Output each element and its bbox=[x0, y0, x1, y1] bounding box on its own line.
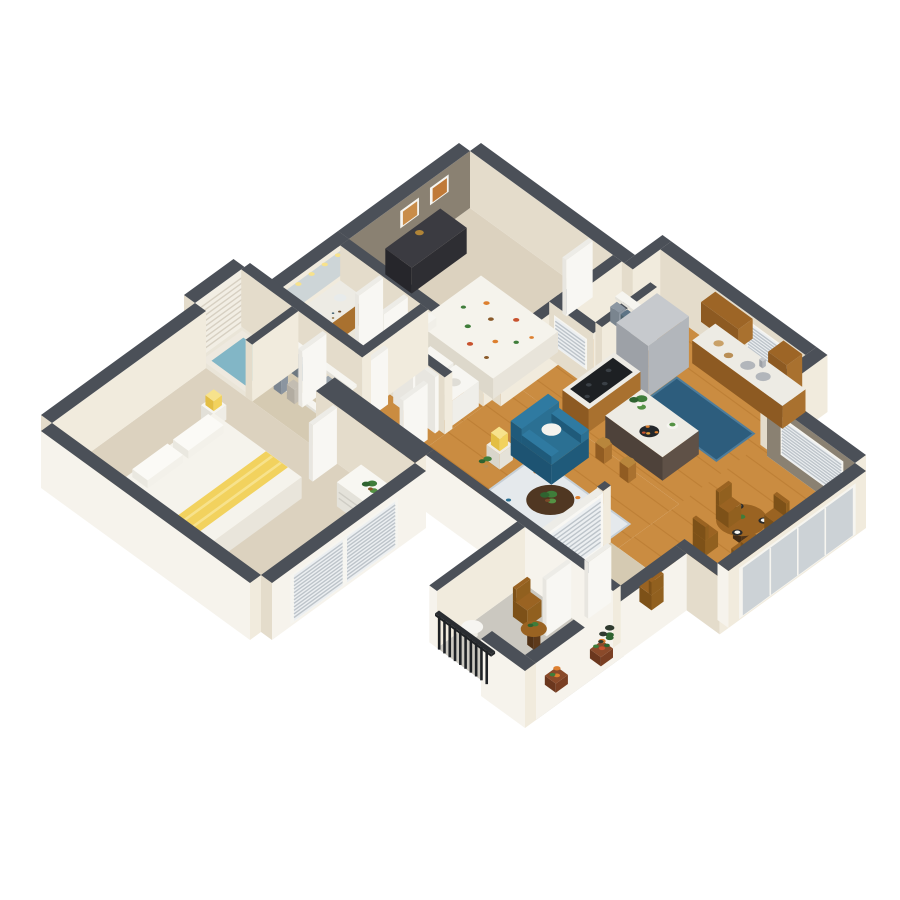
pillow-armchair bbox=[541, 423, 561, 435]
dresser-bowl bbox=[415, 230, 424, 235]
barstool-1-seat bbox=[597, 438, 611, 447]
faucet-kitchen bbox=[759, 357, 766, 369]
floor-plan-page bbox=[0, 0, 900, 900]
floor-plan-canvas bbox=[0, 0, 900, 900]
window-mullion-bedroom1 bbox=[343, 537, 347, 586]
floor-plan-3d-render bbox=[0, 0, 900, 900]
barstool-2-seat bbox=[621, 457, 635, 466]
fruit-platter bbox=[639, 425, 659, 437]
herb-bowl bbox=[667, 422, 678, 429]
